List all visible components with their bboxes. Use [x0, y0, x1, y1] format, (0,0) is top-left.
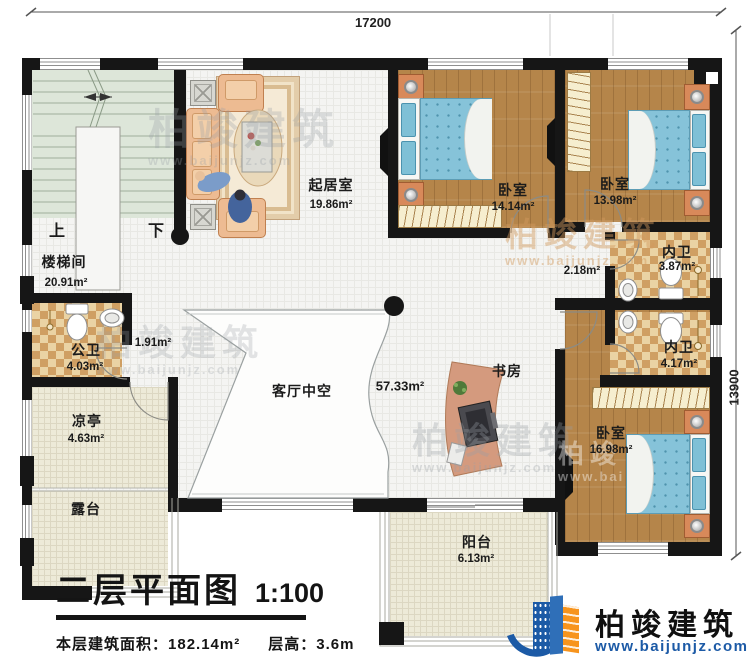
area-stairwell: 20.91m²	[45, 277, 88, 289]
window-left-terrace	[22, 505, 32, 538]
wall-pubbath-south	[22, 377, 130, 387]
area-living: 19.86m²	[310, 199, 353, 211]
title-underline	[56, 615, 306, 620]
wall-pubbath-north	[22, 293, 132, 303]
stair-up-label: 上	[49, 217, 65, 241]
nightstand	[684, 514, 710, 538]
window-top-living	[158, 58, 243, 70]
area-corridor: 2.18m²	[564, 265, 600, 277]
area-bedroom2: 13.98m²	[594, 195, 637, 207]
bed-bedroom2	[628, 110, 710, 190]
wardrobe-bedroom1	[398, 205, 502, 228]
wall-bath-divider	[555, 298, 722, 310]
company-logo: 柏竣建筑 www.baijunjz.com	[505, 594, 745, 666]
label-bedroom3: 卧室	[596, 423, 626, 443]
wall-bathbottom-west	[605, 310, 615, 345]
area-balcony: 6.13m²	[458, 553, 494, 565]
floor-area-value: 182.14m²	[168, 636, 240, 653]
nightstand	[684, 410, 710, 434]
label-bath-inner-bottom: 内卫	[664, 337, 694, 357]
area-bedroom1: 14.14m²	[492, 201, 535, 213]
armchair-bottom	[218, 198, 266, 238]
area-bath-public: 4.03m²	[67, 361, 103, 373]
wardrobe-bedroom3	[592, 387, 710, 409]
window-left-pubbath	[22, 310, 32, 332]
side-table-top	[190, 80, 216, 106]
label-terrace: 露台	[71, 499, 101, 519]
company-website: www.baijunjz.com	[595, 638, 748, 655]
dim-width: 17200	[355, 15, 391, 30]
label-bedroom1: 卧室	[498, 180, 528, 200]
floor-plan: 柏竣建筑 www.baijunjz.com 柏竣建筑 www.baijunjz.…	[0, 0, 750, 669]
label-bath-public: 公卫	[71, 340, 101, 360]
window-right-bathtop	[710, 248, 722, 278]
bed-bedroom3	[626, 434, 710, 514]
label-bath-inner-top: 内卫	[662, 242, 692, 262]
watermark: 柏竣建筑 www.baijunjz.com	[412, 420, 580, 476]
floor-height-label: 层高：	[268, 636, 316, 653]
area-hall-small: 1.91m²	[135, 337, 171, 349]
nightstand	[684, 84, 710, 110]
area-pavilion: 4.63m²	[68, 433, 104, 445]
area-bath-inner-bottom: 4.17m²	[661, 358, 697, 370]
pier-left-3	[20, 538, 34, 566]
wall-bathbottom-south	[600, 375, 722, 387]
logo-building-icon	[563, 605, 579, 654]
area-bedroom3: 16.98m²	[590, 444, 633, 456]
window-left-stair	[22, 95, 32, 170]
corner-notch	[706, 72, 718, 84]
watermark: 柏竣建筑 www.baijunjz.com	[96, 322, 264, 378]
window-south-bedroom3	[598, 542, 668, 556]
page-title: 二层平面图	[56, 572, 241, 610]
nightstand	[398, 74, 424, 100]
scale-label: 1:100	[255, 578, 324, 608]
label-stairwell: 楼梯间	[42, 252, 87, 272]
label-living: 起居室	[309, 175, 354, 195]
pier-left-2	[20, 456, 34, 486]
area-bath-inner-top: 3.87m²	[659, 261, 695, 273]
wall-bathtop-west-b	[605, 266, 615, 302]
side-table-bottom	[190, 204, 216, 230]
wall-bed1-bed2	[555, 58, 565, 232]
window-left-pavilion	[22, 400, 32, 456]
wall-living-bed1	[388, 70, 398, 238]
title-block: 二层平面图1:100 本层建筑面积：182.14m²层高：3.6m	[56, 563, 354, 654]
slider-balcony	[427, 498, 523, 512]
window-top-bedroom1	[428, 58, 523, 70]
label-pavilion: 凉亭	[72, 411, 102, 431]
floor-height-value: 3.6m	[316, 636, 354, 653]
watermark: 柏竣建筑 www.baijunjz.com	[505, 216, 661, 269]
bed-bedroom1	[398, 98, 492, 180]
window-right-bathbottom	[710, 325, 722, 357]
stair-down-label: 下	[148, 217, 164, 241]
logo-building-icon	[550, 595, 563, 654]
window-left-hall	[22, 245, 32, 276]
wardrobe-bedroom2	[567, 72, 591, 172]
watermark: 柏竣建筑 www.baijunjz.com	[148, 106, 340, 169]
floor-area-label: 本层建筑面积：	[56, 636, 168, 653]
label-void: 客厅中空	[272, 381, 332, 401]
area-void: 57.33m²	[376, 379, 424, 394]
window-top-stair	[40, 58, 100, 70]
dim-height: 13900	[727, 369, 742, 405]
wall-bed1-south	[388, 228, 510, 238]
label-bedroom2: 卧室	[600, 174, 630, 194]
logo-building-icon	[533, 602, 550, 652]
label-balcony: 阳台	[462, 532, 492, 552]
wall-pavilion-east	[168, 377, 178, 498]
nightstand	[684, 190, 710, 216]
window-south-hall	[222, 498, 353, 512]
label-study: 书房	[492, 361, 522, 381]
window-top-bedroom2	[608, 58, 688, 70]
